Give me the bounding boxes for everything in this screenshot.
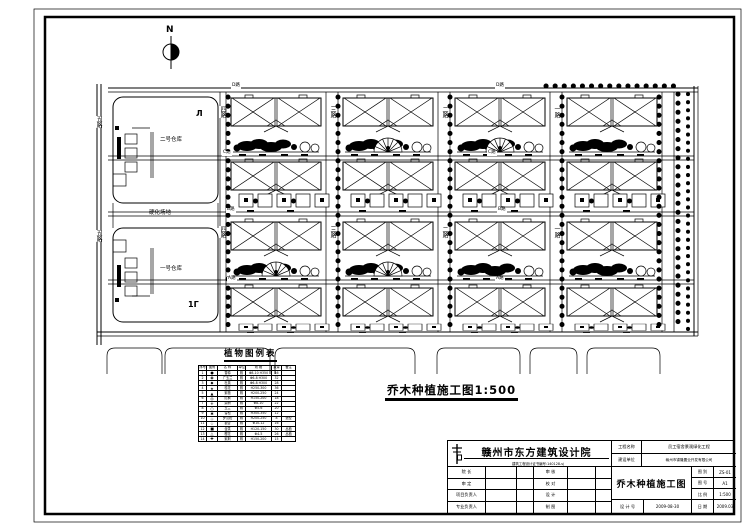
legend-cell: 紫荆	[218, 437, 238, 442]
middle-yard-label: 硬化场地	[149, 211, 171, 217]
sig-cell	[568, 479, 596, 490]
legend-title: 植物图例表	[224, 347, 277, 362]
design-no-label: 设 计 号	[612, 500, 644, 513]
sig-row: 专业负责人 制 图	[448, 502, 611, 514]
road-label-v4: 四路	[219, 226, 225, 238]
legend-cell: 14	[199, 437, 207, 442]
legend-cell: 15	[272, 437, 282, 442]
sig-cell	[486, 467, 517, 478]
sig-cell	[596, 467, 611, 478]
legend-row: 14✚紫荆株H150-20015	[199, 437, 296, 442]
drawing-sheet: N 五路 五路 四路 四路 三路 三路 二路 二路 一路 一路 D路 D路 C路…	[0, 0, 749, 530]
block1-label: 一号仓库	[160, 267, 182, 273]
sig-cell	[486, 502, 517, 514]
legend-cell	[282, 437, 296, 442]
company-logo	[451, 443, 463, 465]
sig-cell	[486, 479, 517, 490]
road-label-c: C路	[222, 151, 232, 156]
section-mark-top: Л	[196, 110, 203, 118]
title-block: 赣州市东方建筑设计院 建筑工程设计证书编号:140128-sj 院 长 审 核 …	[447, 440, 734, 514]
drawing-title: 乔木种植施工图	[612, 467, 692, 499]
sig-cell	[486, 490, 517, 501]
company-header: 赣州市东方建筑设计院 建筑工程设计证书编号:140128-sj	[448, 441, 611, 467]
field-label: 图 别	[692, 467, 714, 477]
north-arrow	[163, 36, 179, 69]
sig-cell	[568, 490, 596, 501]
block2-label: 二号仓库	[160, 138, 182, 144]
title-block-left: 赣州市东方建筑设计院 建筑工程设计证书编号:140128-sj 院 长 审 核 …	[448, 441, 611, 513]
sig-label: 专业负责人	[448, 502, 486, 514]
road-label-outer: 五路	[95, 230, 101, 242]
legend-cell: 株	[238, 437, 246, 442]
client-value: 赣州市锦隆置业开发有限公司	[642, 454, 736, 466]
sig-row: 项目负责人 设 计	[448, 490, 611, 502]
drawing-caption: 乔木种植施工图1:500	[385, 385, 518, 401]
road-label-a: A路	[495, 277, 505, 282]
project-label: 工程名称	[612, 441, 642, 453]
sig-cell	[517, 479, 534, 490]
field-label: 比 例	[692, 489, 714, 499]
company-cert: 建筑工程设计证书编号:140128-sj	[468, 461, 608, 466]
date-label: 日 期	[692, 500, 714, 513]
road-label-v3: 三路	[329, 226, 335, 238]
field-label: 图 号	[692, 478, 714, 488]
sig-row: 审 定 校 对	[448, 479, 611, 491]
sig-label: 审 核	[534, 467, 568, 478]
sig-label: 项目负责人	[448, 490, 486, 501]
road-label-v2: 二路	[441, 226, 447, 238]
sig-label: 院 长	[448, 467, 486, 478]
road-label-b: B路	[497, 208, 507, 213]
road-label-outer: 五路	[95, 116, 101, 128]
sig-cell	[517, 502, 534, 514]
sig-label: 校 对	[534, 479, 568, 490]
field-value: 1:500	[714, 489, 736, 499]
road-label-v1: 一路	[553, 226, 559, 238]
sig-cell	[517, 490, 534, 501]
sig-row: 院 长 审 核	[448, 467, 611, 479]
north-label: N	[166, 26, 174, 35]
legend-table: 序号 图例 名 称 单位 规 格 数量 备注 1●香樟株Φ8-10 H35046…	[198, 365, 296, 442]
road-label-v1: 一路	[553, 106, 559, 118]
road-label-v4: 四路	[219, 106, 225, 118]
sig-label: 制 图	[534, 502, 568, 514]
sig-cell	[596, 502, 611, 514]
title-block-right: 工程名称 员工宿舍景观绿化工程 建设单位 赣州市锦隆置业开发有限公司 乔木种植施…	[611, 441, 735, 513]
legend-cell: ✚	[207, 437, 218, 442]
sig-label: 审 定	[448, 479, 486, 490]
road-label-a: A路	[227, 277, 237, 282]
sig-cell	[568, 467, 596, 478]
client-label: 建设单位	[612, 454, 642, 466]
legend-cell: H150-200	[246, 437, 272, 442]
road-label-v2: 二路	[441, 106, 447, 118]
section-mark-bottom: 1Γ	[188, 301, 199, 309]
date-value: 2009.03	[714, 500, 736, 513]
sig-label: 设 计	[534, 490, 568, 501]
company-underline	[464, 458, 609, 460]
sig-cell	[596, 479, 611, 490]
field-value: A1	[714, 478, 736, 488]
road-label-d: D路	[231, 84, 241, 89]
plant-legend: 植物图例表 序号 图例 名 称 单位 规 格 数量 备注 1●香樟株Φ8-10 …	[198, 341, 298, 442]
sig-cell	[568, 502, 596, 514]
design-no-value: 2009-08-30	[644, 500, 692, 513]
project-value: 员工宿舍景观绿化工程	[642, 441, 736, 453]
road-label-b: B路	[226, 208, 236, 213]
road-label-v3: 三路	[329, 106, 335, 118]
road-label-c: C路	[487, 151, 497, 156]
sig-cell	[596, 490, 611, 501]
road-label-d: D路	[495, 84, 505, 89]
field-value: ZS-01	[714, 467, 736, 477]
sig-cell	[517, 467, 534, 478]
